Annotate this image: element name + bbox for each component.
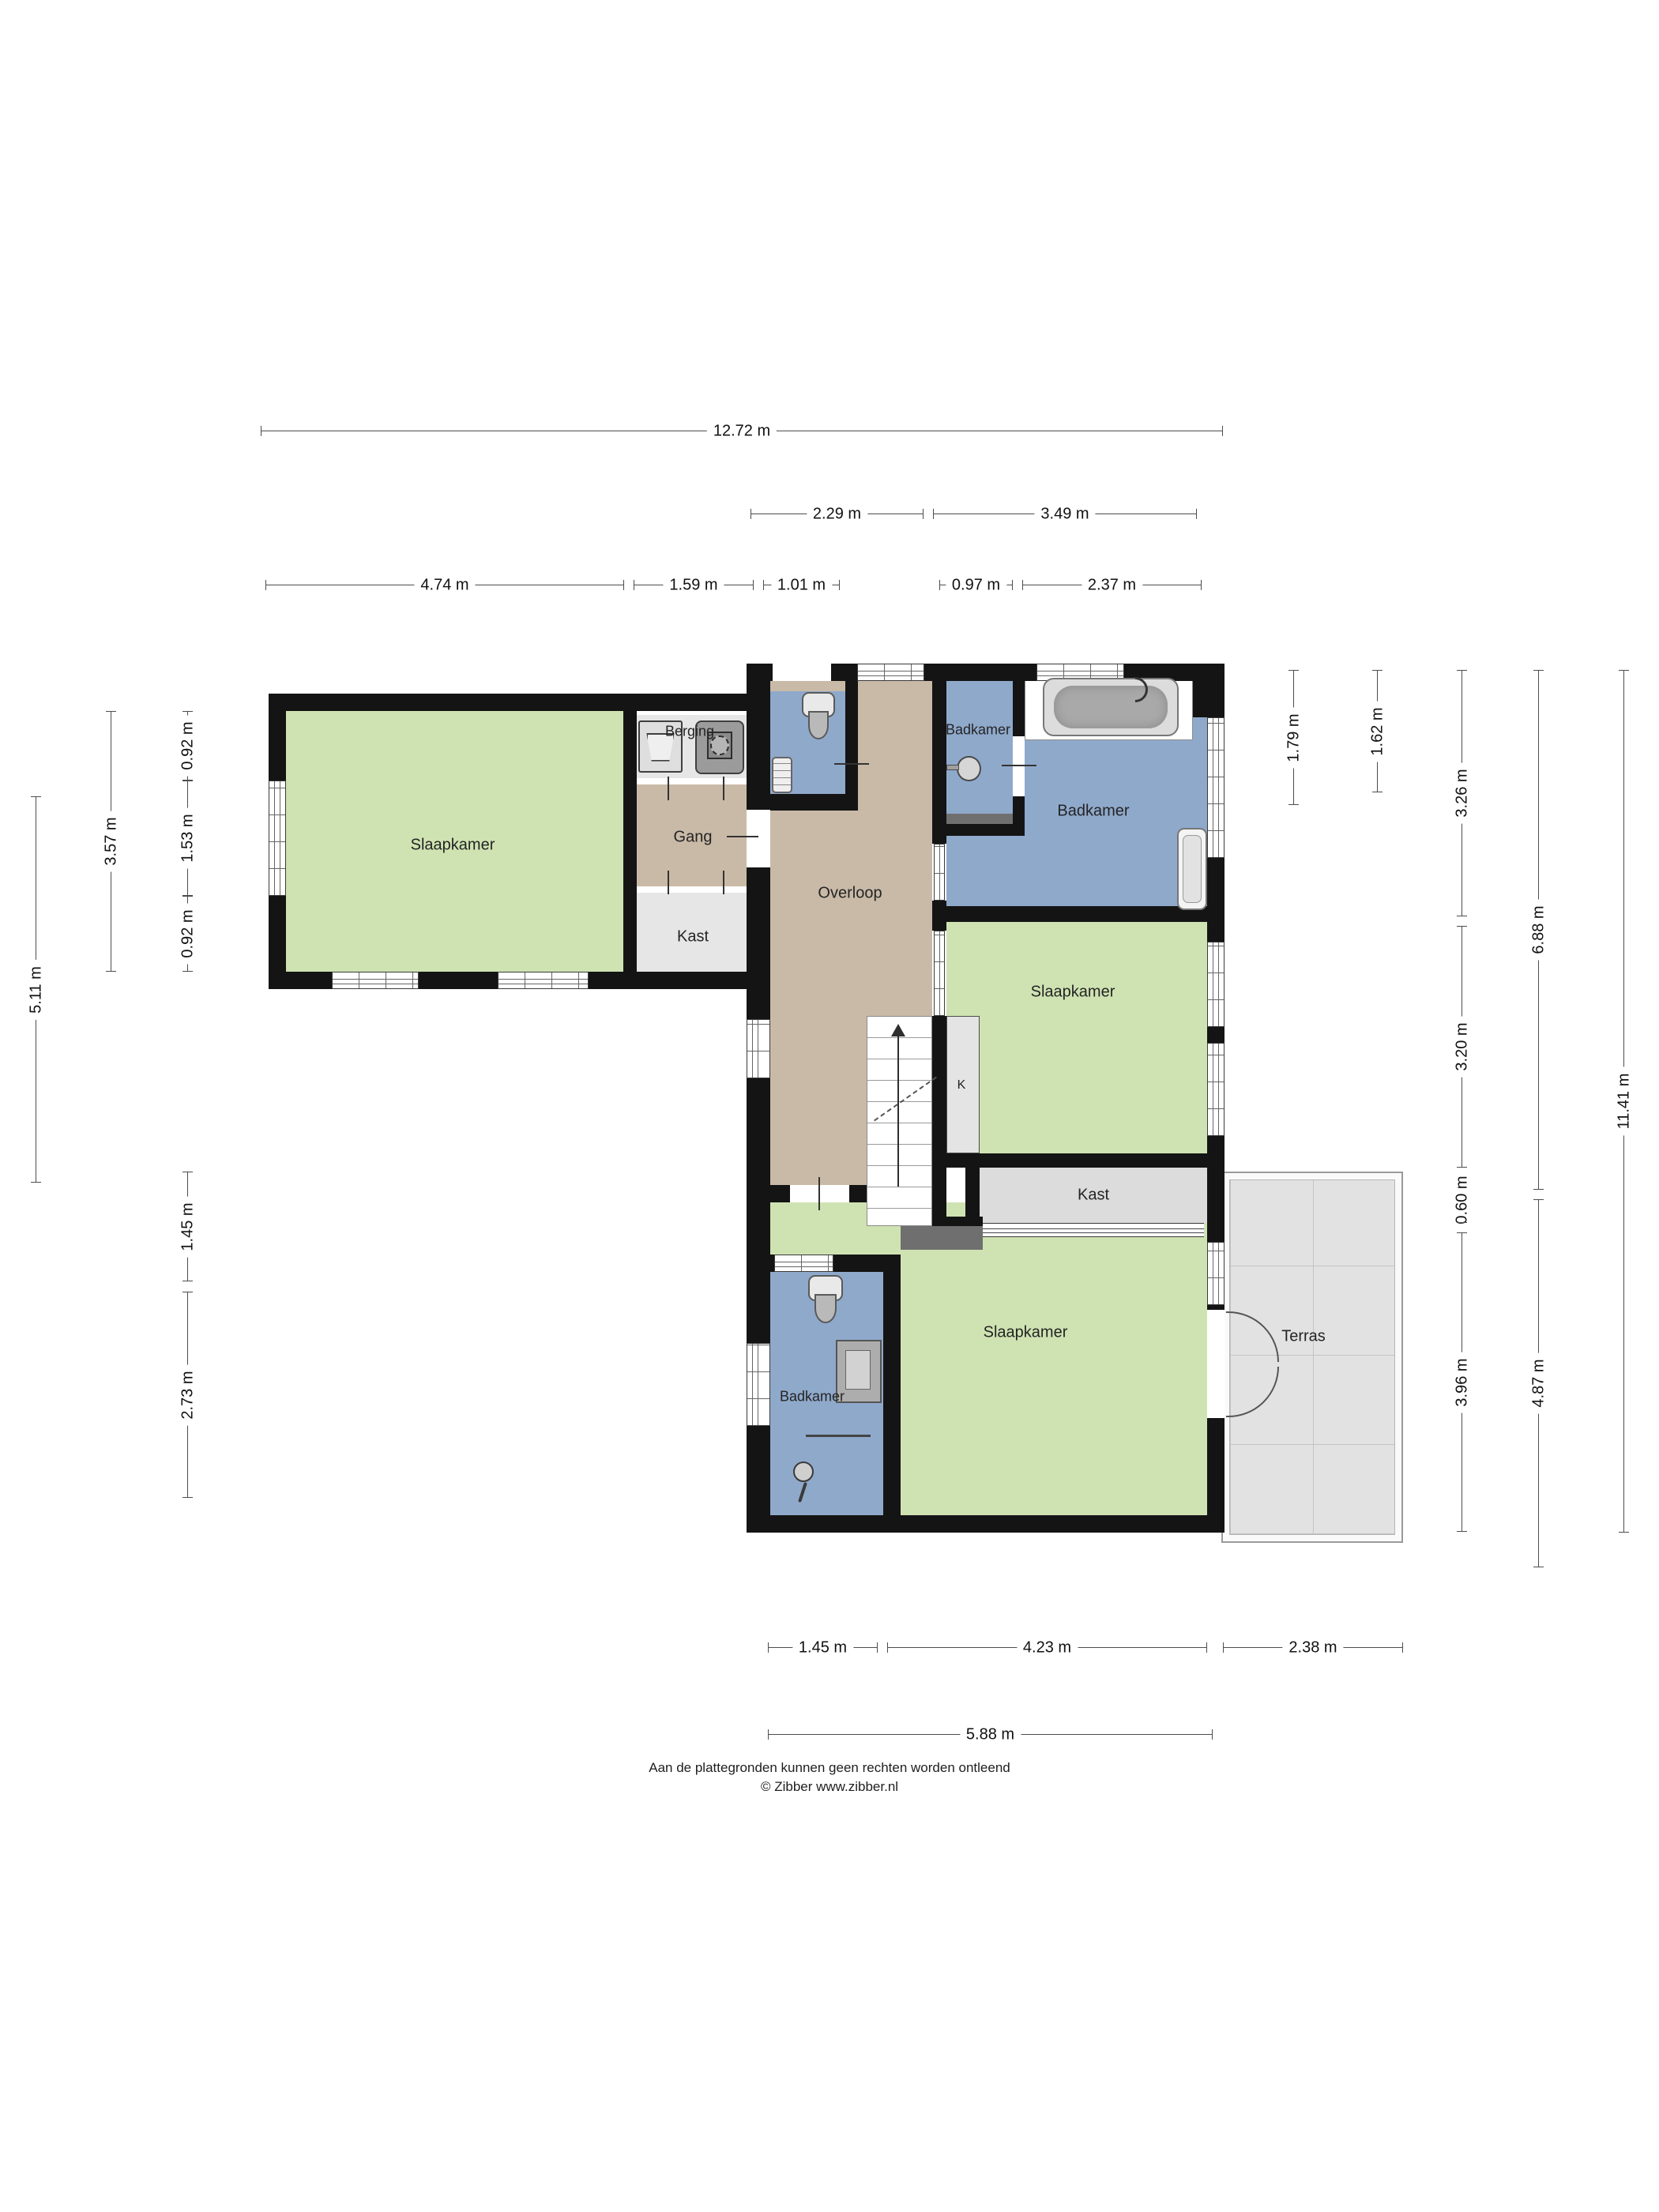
dimension-label: 2.29 m xyxy=(807,506,867,524)
door-opening xyxy=(747,810,770,867)
room-label: Slaapkamer xyxy=(1031,984,1115,1002)
door-tick xyxy=(668,777,669,800)
dimension-label: 3.49 m xyxy=(1034,506,1095,524)
window xyxy=(269,781,286,896)
dimension-line: 2.73 m xyxy=(187,1292,188,1498)
window xyxy=(747,1019,770,1078)
wall xyxy=(269,694,770,711)
door-tick xyxy=(727,836,758,837)
dimension-label: 1.53 m xyxy=(179,807,197,868)
dimension-line: 11.41 m xyxy=(1623,670,1624,1533)
dimension-label: 0.92 m xyxy=(179,903,197,964)
dimension-line: 12.72 m xyxy=(261,431,1223,431)
dimension-line: 3.20 m xyxy=(1461,926,1462,1168)
room-label: K xyxy=(957,1078,966,1093)
wall xyxy=(932,681,946,844)
dimension-label: 1.45 m xyxy=(179,1196,197,1257)
dimension-label: 6.88 m xyxy=(1530,899,1548,960)
wall xyxy=(623,711,637,972)
room-label: Slaapkamer xyxy=(984,1324,1068,1342)
dimension-line: 5.11 m xyxy=(36,796,36,1183)
dimension-label: 1.62 m xyxy=(1369,701,1387,762)
bathtub-icon xyxy=(1177,828,1207,910)
dimension-line: 0.60 m xyxy=(1461,1177,1462,1223)
door-tick xyxy=(723,871,724,894)
room-label: Slaapkamer xyxy=(411,837,495,855)
dimension-line: 1.53 m xyxy=(187,781,188,896)
dimension-line: 0.92 m xyxy=(187,896,188,972)
window xyxy=(857,664,924,681)
french-doors-icon xyxy=(1224,1310,1297,1419)
dimension-line: 1.45 m xyxy=(768,1647,878,1648)
dimension-label: 3.20 m xyxy=(1454,1016,1472,1077)
dimension-line: 6.88 m xyxy=(1538,670,1539,1190)
door-opening xyxy=(1207,1310,1224,1418)
door-tick xyxy=(818,1177,820,1210)
window xyxy=(1207,1043,1224,1136)
dimension-line: 3.57 m xyxy=(111,711,111,972)
sink-icon xyxy=(946,754,984,787)
window xyxy=(1207,942,1224,1027)
room-label: Gang xyxy=(674,829,713,847)
sliding-window xyxy=(983,1223,1204,1237)
footer-copyright: © Zibber www.zibber.nl xyxy=(0,1779,1659,1795)
room-badkamer-small xyxy=(946,681,1013,815)
threshold xyxy=(946,814,1013,824)
dimension-line: 0.97 m xyxy=(939,585,1013,585)
room-label: Badkamer xyxy=(946,722,1010,739)
towel-rail xyxy=(806,1435,871,1437)
wall xyxy=(770,794,858,811)
dimension-line: 4.74 m xyxy=(265,585,624,585)
dimension-line: 1.45 m xyxy=(187,1172,188,1281)
footer-disclaimer: Aan de plattegronden kunnen geen rechten… xyxy=(0,1760,1659,1776)
dimension-line: 3.96 m xyxy=(1461,1232,1462,1532)
dimension-line: 5.88 m xyxy=(768,1734,1213,1735)
window xyxy=(498,972,589,989)
dimension-label: 11.41 m xyxy=(1616,1067,1634,1136)
window xyxy=(332,972,419,989)
wall xyxy=(883,1255,901,1515)
dimension-line: 1.62 m xyxy=(1377,670,1378,792)
dimension-label: 12.72 m xyxy=(707,423,777,441)
window xyxy=(774,1255,833,1272)
dimension-label: 5.88 m xyxy=(960,1726,1021,1744)
wall xyxy=(965,1153,980,1223)
room-label: Badkamer xyxy=(780,1389,845,1405)
dimension-label: 3.96 m xyxy=(1454,1352,1472,1413)
bathtub-icon xyxy=(1043,678,1179,736)
dimension-line: 3.26 m xyxy=(1461,670,1462,916)
window xyxy=(934,844,945,901)
dimension-line: 0.92 m xyxy=(187,711,188,781)
dimension-label: 5.11 m xyxy=(28,960,46,1020)
threshold xyxy=(901,1226,983,1250)
wall xyxy=(747,1515,1224,1533)
dimension-line: 2.37 m xyxy=(1022,585,1202,585)
window xyxy=(747,1343,770,1426)
room-slaapkamer-middle xyxy=(946,922,1207,1153)
floorplan-page: SlaapkamerBergingGangKastOverloopBadkame… xyxy=(0,0,1659,2212)
dimension-label: 4.74 m xyxy=(414,577,475,595)
door-tick xyxy=(1002,765,1036,766)
dimension-line: 4.23 m xyxy=(887,1647,1207,1648)
door-opening xyxy=(773,664,831,681)
dimension-label: 4.23 m xyxy=(1017,1639,1078,1657)
door-opening xyxy=(1013,736,1025,796)
wall xyxy=(932,1016,946,1226)
door-tick xyxy=(834,763,869,765)
window xyxy=(1207,1242,1224,1305)
room-label: Kast xyxy=(1078,1187,1109,1205)
wall xyxy=(845,681,858,794)
dimension-label: 2.73 m xyxy=(179,1364,197,1425)
dimension-label: 0.97 m xyxy=(946,577,1006,595)
wall xyxy=(1193,664,1224,717)
dimension-label: 4.87 m xyxy=(1530,1352,1548,1413)
wall xyxy=(946,906,1207,922)
toilet-icon xyxy=(806,1275,845,1326)
door-tick xyxy=(723,777,724,800)
toilet-icon xyxy=(799,692,837,741)
dimension-line: 1.01 m xyxy=(763,585,840,585)
dimension-label: 1.01 m xyxy=(771,577,832,595)
dimension-line: 4.87 m xyxy=(1538,1199,1539,1567)
room-label: Badkamer xyxy=(1057,803,1129,821)
door-tick xyxy=(668,871,669,894)
floor-plan: SlaapkamerBergingGangKastOverloopBadkame… xyxy=(0,0,1659,2212)
dimension-line: 2.29 m xyxy=(750,513,924,514)
dimension-label: 1.45 m xyxy=(792,1639,853,1657)
room-label: Berging xyxy=(665,724,714,740)
dimension-line: 1.59 m xyxy=(634,585,754,585)
radiator-icon xyxy=(772,757,792,793)
wall xyxy=(1013,664,1025,736)
window xyxy=(1207,717,1224,858)
dimension-line: 3.49 m xyxy=(933,513,1197,514)
dimension-label: 1.59 m xyxy=(663,577,724,595)
room-badkamer-large-ext xyxy=(946,836,1025,906)
dimension-label: 3.57 m xyxy=(103,811,121,871)
dimension-label: 2.38 m xyxy=(1282,1639,1343,1657)
dimension-label: 0.92 m xyxy=(179,715,197,776)
window xyxy=(934,931,945,1016)
wall xyxy=(946,824,1025,836)
room-label: Terras xyxy=(1281,1328,1326,1346)
room-label: Overloop xyxy=(818,885,882,903)
dimension-label: 2.37 m xyxy=(1082,577,1142,595)
dimension-line: 2.38 m xyxy=(1223,1647,1403,1648)
dimension-label: 0.60 m xyxy=(1454,1169,1472,1230)
dimension-line: 1.79 m xyxy=(1293,670,1294,805)
wall xyxy=(932,901,946,931)
dimension-label: 3.26 m xyxy=(1454,762,1472,823)
room-label: Kast xyxy=(677,928,709,946)
dimension-label: 1.79 m xyxy=(1285,707,1303,768)
shower-icon xyxy=(790,1461,818,1509)
